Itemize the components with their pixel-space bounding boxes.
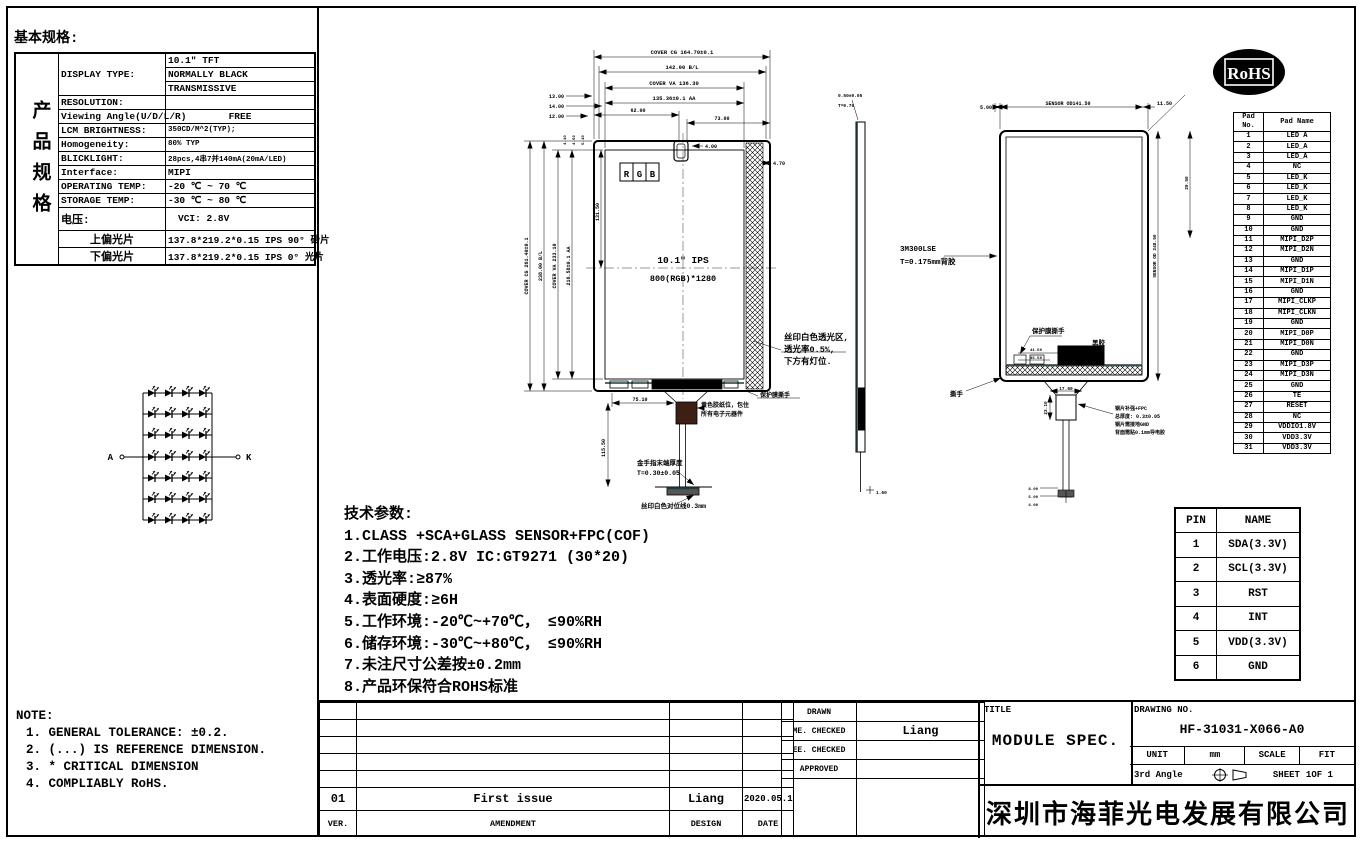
approval-label: EE. CHECKED	[782, 741, 857, 760]
dim-label: COVER VA 136.30	[649, 80, 699, 87]
tear-tab-callout: 撕手	[950, 389, 964, 398]
gold-finger-callout: T=0.30±0.05	[637, 470, 680, 477]
led-cathode-label: K	[246, 453, 252, 463]
dim-label: 12.00	[549, 114, 564, 120]
revision-header: VER.	[320, 811, 357, 837]
dim-label: 23.10	[1043, 401, 1049, 415]
dim-label: T=0.70	[838, 103, 855, 109]
dim-label: 135.36±0.1 AA	[653, 95, 697, 102]
revision-ver: 01	[320, 788, 357, 811]
dim-label: 4.70	[773, 161, 785, 167]
panel-size-label: 10.1" IPS	[657, 255, 709, 266]
rgb-label: G	[637, 170, 642, 180]
panel-resolution-label: 800(RGB)*1280	[650, 274, 716, 284]
dim-label: 131.50	[595, 203, 601, 221]
dim-label: 4.00	[705, 144, 717, 150]
peel-tab-callout: 保护膜撕手	[759, 391, 790, 399]
sheet-cell: SHEET 1OF 1	[1252, 765, 1354, 784]
dim-label: 13.00	[549, 94, 564, 100]
tape-callout: 所有电子元器件	[701, 410, 743, 418]
revision-header-row: VER. AMENDMENT DESIGN DATE	[320, 811, 794, 837]
unit-value: mm	[1185, 746, 1245, 765]
projection-angle-label: 3rd Angle	[1130, 765, 1211, 784]
alignment-callout: 丝印白色对位线0.3mm	[641, 501, 706, 510]
dim-label: 75.10	[632, 397, 647, 403]
module-spec-drawing-sheet: { "spec": { "heading": "基本规格:", "side": …	[0, 0, 1362, 843]
back-view: 5.00 SENSOR OD141.50 11.50 29.50 SENSOR …	[838, 93, 1190, 508]
third-angle-icon	[1212, 767, 1250, 783]
fpc-note: 钢片补强+FPC	[1115, 405, 1147, 412]
approval-value: Liang	[857, 722, 985, 741]
drawing-no-value: HF-31031-X066-A0	[1130, 722, 1354, 737]
dim-label: 73.00	[714, 116, 729, 122]
scale-value: FIT	[1300, 746, 1354, 765]
window-callout: 下方有灯位.	[784, 356, 832, 367]
unit-scale-row: UNIT mm SCALE FIT	[1130, 746, 1354, 765]
dim-label: 4.10	[564, 135, 568, 145]
title-label: TITLE	[984, 705, 1011, 715]
dim-label: 17.60	[1059, 386, 1073, 392]
side-view: 3M300LSE T=0.175mm背胶 1.60	[856, 122, 997, 496]
projection-symbol	[1211, 765, 1252, 784]
window-callout: 丝印白色透光区,	[784, 332, 849, 343]
dim-label: 41.50	[1030, 349, 1043, 353]
unit-label: UNIT	[1130, 746, 1185, 765]
dim-label: SENSOR OD141.50	[1045, 101, 1090, 107]
fpc-note: 背面需贴0.1mm导电胶	[1115, 429, 1165, 436]
sheet-label: SHEET	[1273, 770, 1300, 780]
led-anode-label: A	[108, 453, 114, 463]
dim-label: 62.00	[630, 108, 645, 114]
dim-label: COVER CG 261.40±0.1	[524, 237, 530, 294]
title-block-region: 01 First issue Liang 2020.05.10 VER. AME…	[319, 700, 1354, 836]
sheet-value: 1OF 1	[1306, 770, 1333, 780]
revision-amendment: First issue	[357, 788, 670, 811]
gold-finger-callout: 金手指末端厚度	[636, 458, 683, 467]
black-glue-callout: 黑胶	[1092, 338, 1106, 347]
dim-label: 4.00	[1028, 504, 1038, 508]
title-cell: TITLE MODULE SPEC.	[978, 702, 1133, 784]
dim-label: 238.00 B/L	[538, 251, 544, 281]
drawing-info-cell: DRAWING NO. HF-31031-X066-A0 UNIT mm SCA…	[1130, 702, 1354, 784]
dim-label: 4.50	[573, 135, 577, 145]
dim-label: 11.50	[1157, 101, 1172, 107]
revision-entry-row: 01 First issue Liang 2020.05.10	[320, 788, 794, 811]
drawing-no-label: DRAWING NO.	[1134, 705, 1193, 715]
dim-label: 1.60	[876, 490, 887, 496]
scale-label: SCALE	[1245, 746, 1299, 765]
fpc-note: 总厚度: 0.3±0.05	[1115, 413, 1160, 420]
dim-label: COVER CG 164.70±0.1	[651, 49, 714, 56]
window-callout: 透光率0.5%,	[784, 344, 835, 355]
front-view: COVER CG 164.70±0.1 142.00 B/L COVER VA …	[524, 49, 849, 510]
led-symbols	[148, 386, 210, 524]
dim-label: 5.10	[582, 135, 586, 145]
dim-label: 0.50±0.05	[838, 93, 863, 99]
revision-header: DESIGN	[670, 811, 743, 837]
module-title: MODULE SPEC.	[980, 732, 1131, 750]
rgb-label: B	[650, 170, 656, 180]
dim-label: 5.00	[980, 105, 992, 111]
approvals-section: DRAWN ME. CHECKED Liang EE. CHECKED APPR…	[781, 702, 978, 836]
fpc-note: 钢片需接地GND	[1115, 421, 1149, 428]
company-name: 深圳市海菲光电发展有限公司	[978, 784, 1356, 838]
dim-label: COVER VA 233.10	[552, 243, 558, 288]
projection-sheet-row: 3rd Angle SHEET 1OF 1	[1130, 765, 1354, 784]
drawing-no-cell: DRAWING NO. HF-31031-X066-A0	[1130, 702, 1354, 747]
revision-header: AMENDMENT	[357, 811, 670, 837]
approval-label: DRAWN	[782, 703, 857, 722]
led-backlight-circuit	[120, 393, 240, 520]
dim-label: 14.00	[549, 104, 564, 110]
dim-label: 142.00 B/L	[665, 64, 699, 71]
approval-label: ME. CHECKED	[782, 722, 857, 741]
dim-label: 5.00	[1028, 496, 1038, 500]
rgb-label: R	[624, 170, 630, 180]
approval-label: APPROVED	[782, 760, 857, 779]
dim-label: SENSOR OD 248.50	[1152, 234, 1158, 278]
revision-table: 01 First issue Liang 2020.05.10 VER. AME…	[319, 702, 794, 837]
peel-tab-callout: 保护膜撕手	[1031, 326, 1065, 335]
dim-label: 29.50	[1184, 176, 1190, 190]
dim-label: 115.50	[601, 439, 607, 457]
adhesive-callout: T=0.175mm背胶	[900, 256, 956, 267]
dim-label: 45.50	[1030, 357, 1043, 361]
revision-design: Liang	[670, 788, 743, 811]
dim-label: 8.00	[1028, 488, 1038, 492]
tape-callout: 黄色胶纸位，包住	[701, 401, 749, 409]
dim-label: 216.58±0.1 AA	[566, 246, 572, 285]
adhesive-callout: 3M300LSE	[900, 246, 937, 254]
